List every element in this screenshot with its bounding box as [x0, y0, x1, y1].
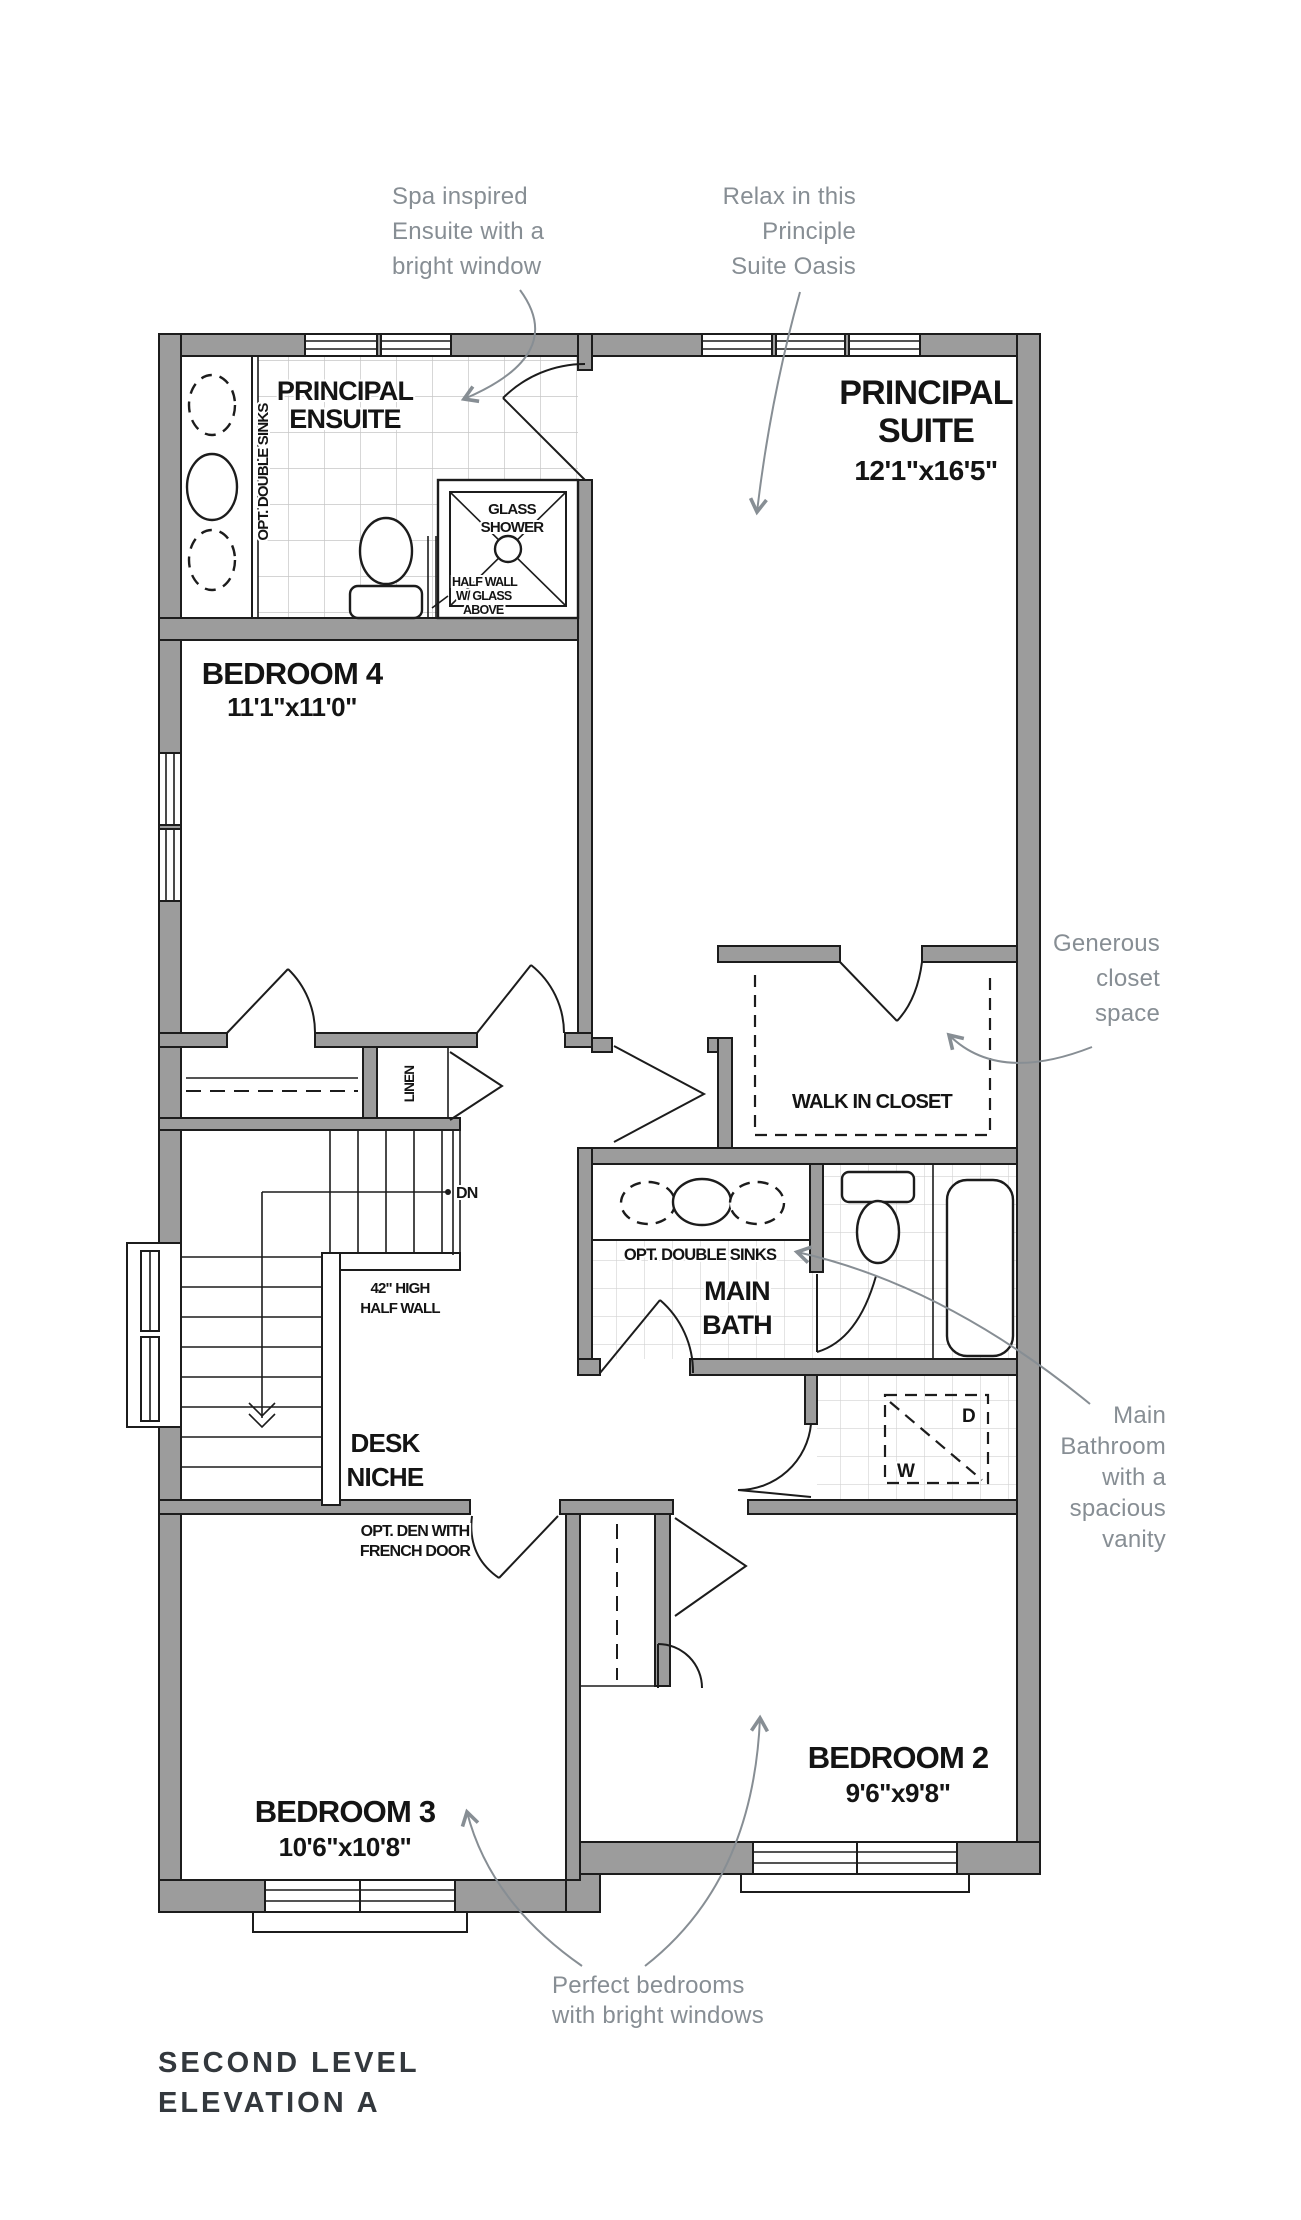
bath-sink: [673, 1179, 731, 1225]
wall-bedroom4-bottom-a: [159, 1033, 227, 1047]
window-stair-bay: [127, 1243, 181, 1427]
label-linen: LINEN: [402, 1066, 417, 1103]
half-wall-horizontal: [322, 1253, 460, 1270]
french-doors: [471, 1516, 558, 1578]
bedroom4-closet-door: [227, 969, 315, 1033]
label-principal-suite-dims: 12'1"x16'5": [854, 455, 997, 486]
wall-bedroom4-bottom-c: [565, 1033, 592, 1047]
annotation-bath-line4: spacious: [1070, 1495, 1166, 1522]
annotation-spa-line2: Ensuite with a: [392, 218, 545, 245]
annotation-bedrooms-line1: Perfect bedrooms: [552, 1972, 745, 1999]
walk-in-closet-doors: [840, 962, 922, 1021]
annotation-relax-leader: [757, 292, 800, 512]
wall-stair-top: [159, 1118, 460, 1130]
footer: SECOND LEVEL ELEVATION A: [158, 2047, 420, 2119]
wall-wic-top-b: [922, 946, 1017, 962]
label-bedroom2: BEDROOM 2: [808, 1740, 989, 1775]
annotation-bedrooms-line2: with bright windows: [551, 2002, 764, 2029]
annotation-bath-line1: Main: [1113, 1402, 1166, 1429]
label-half-wall-glass-3: ABOVE: [463, 603, 504, 617]
label-washer: W: [897, 1461, 915, 1482]
label-main-bath-2: BATH: [702, 1310, 772, 1340]
label-42-half-wall-2: HALF WALL: [360, 1300, 440, 1317]
bedroom4-entry-door: [477, 965, 564, 1033]
optional-sink-top: [189, 375, 235, 435]
label-principal-ensuite-1: PRINCIPAL: [277, 376, 414, 406]
label-opt-double-sinks-ensuite: OPT. DOUBLE SINKS: [255, 403, 272, 541]
wall-hall-bottom-c: [748, 1500, 1017, 1514]
label-opt-double-sinks-bath: OPT. DOUBLE SINKS: [624, 1246, 777, 1264]
sink: [187, 454, 237, 520]
label-bedroom3-dims: 10'6"x10'8": [279, 1832, 412, 1862]
wall-bedroom4-bottom-b: [315, 1033, 477, 1047]
wall-wic-top-a: [718, 946, 840, 962]
annotation-bath-line2: Bathroom: [1060, 1433, 1166, 1460]
linen-door: [450, 1052, 502, 1120]
label-half-wall-glass-2: W/ GLASS: [456, 589, 512, 603]
main-bath-vanity: [592, 1164, 810, 1240]
label-glass-shower-2: SHOWER: [481, 519, 545, 536]
optional-sink-right: [730, 1182, 784, 1224]
label-principal-ensuite-2: ENSUITE: [289, 404, 400, 434]
label-bedroom4-dims: 11'1"x11'0": [227, 692, 357, 722]
bedroom2-closet-rod: [580, 1524, 655, 1686]
shower-drain: [495, 536, 521, 562]
window-bedroom2-bottom: [741, 1842, 969, 1892]
wall-bath-bottom-b: [690, 1359, 1017, 1375]
stair-down-arrow: [249, 1192, 275, 1427]
wall-bath-bottom-a: [578, 1359, 600, 1375]
label-principal-suite-2: SUITE: [878, 412, 974, 450]
label-glass-shower-1: GLASS: [488, 501, 536, 518]
wall-hall-bottom-a: [159, 1500, 470, 1514]
annotation-closet-line1: Generous: [1053, 930, 1160, 957]
annotation-closet-line2: closet: [1096, 965, 1160, 992]
label-principal-suite-1: PRINCIPAL: [839, 374, 1013, 412]
floorplan-page: PRINCIPAL ENSUITE PRINCIPAL SUITE 12'1"x…: [0, 0, 1301, 2220]
wall-ensuite-bottom: [159, 618, 592, 640]
wall-right: [1017, 334, 1040, 1874]
label-dryer: D: [962, 1406, 975, 1427]
label-opt-den-1: OPT. DEN WITH: [361, 1523, 470, 1540]
wall-bedroom23-divider: [566, 1514, 580, 1880]
footer-elevation: ELEVATION A: [158, 2087, 381, 2119]
label-bedroom3: BEDROOM 3: [255, 1794, 436, 1829]
annotation-relax-line1: Relax in this: [723, 183, 856, 210]
bedroom2-entry-door: [675, 1518, 746, 1616]
stair-dn-callout: [262, 1189, 451, 1195]
window-bedroom3-bottom: [253, 1880, 467, 1932]
label-42-half-wall-1: 42" HIGH: [370, 1280, 429, 1297]
floorplan-svg: PRINCIPAL ENSUITE PRINCIPAL SUITE 12'1"x…: [0, 0, 1301, 2220]
half-wall-vertical: [322, 1253, 340, 1505]
label-bedroom4: BEDROOM 4: [202, 656, 384, 691]
optional-sink-left: [621, 1182, 675, 1224]
label-dn: DN: [456, 1185, 478, 1202]
annotation-relax-line3: Suite Oasis: [731, 253, 856, 280]
window-suite-top: [702, 334, 920, 356]
laundry-door: [738, 1424, 811, 1497]
window-ensuite-top: [305, 334, 451, 356]
wall-bath-top: [578, 1148, 1017, 1164]
label-half-wall-glass-1: HALF WALL: [452, 575, 518, 589]
bathtub: [947, 1180, 1013, 1356]
label-main-bath-1: MAIN: [704, 1276, 770, 1306]
ensuite-vanity: [187, 356, 258, 618]
label-bedroom2-dims: 9'6"x9'8": [846, 1778, 951, 1808]
wall-laundry-left: [805, 1375, 817, 1424]
label-desk-niche-1: DESK: [350, 1428, 420, 1458]
label-desk-niche-2: NICHE: [347, 1462, 424, 1492]
annotation-bath-line5: vanity: [1102, 1526, 1166, 1553]
footer-level: SECOND LEVEL: [158, 2047, 420, 2079]
annotation-closet-line3: space: [1095, 1000, 1160, 1027]
annotation-spa-line1: Spa inspired: [392, 183, 528, 210]
stair-treads-lower: [181, 1257, 322, 1467]
annotation-bath-line3: with a: [1101, 1464, 1166, 1491]
label-walk-in-closet: WALK IN CLOSET: [792, 1091, 952, 1113]
wall-bath-left: [578, 1148, 592, 1375]
annotation-spa-line3: bright window: [392, 253, 542, 280]
suite-entry-door: [614, 1046, 704, 1142]
annotation-relax-line2: Principle: [762, 218, 856, 245]
optional-sink-bottom: [189, 530, 235, 590]
wall-suite-hall-a: [592, 1038, 612, 1052]
wall-ensuite-suite-divider: [578, 480, 592, 1047]
wall-closet-divider: [363, 1047, 377, 1118]
wall-hall-bottom-b: [560, 1500, 673, 1514]
label-opt-den-2: FRENCH DOOR: [360, 1543, 472, 1560]
